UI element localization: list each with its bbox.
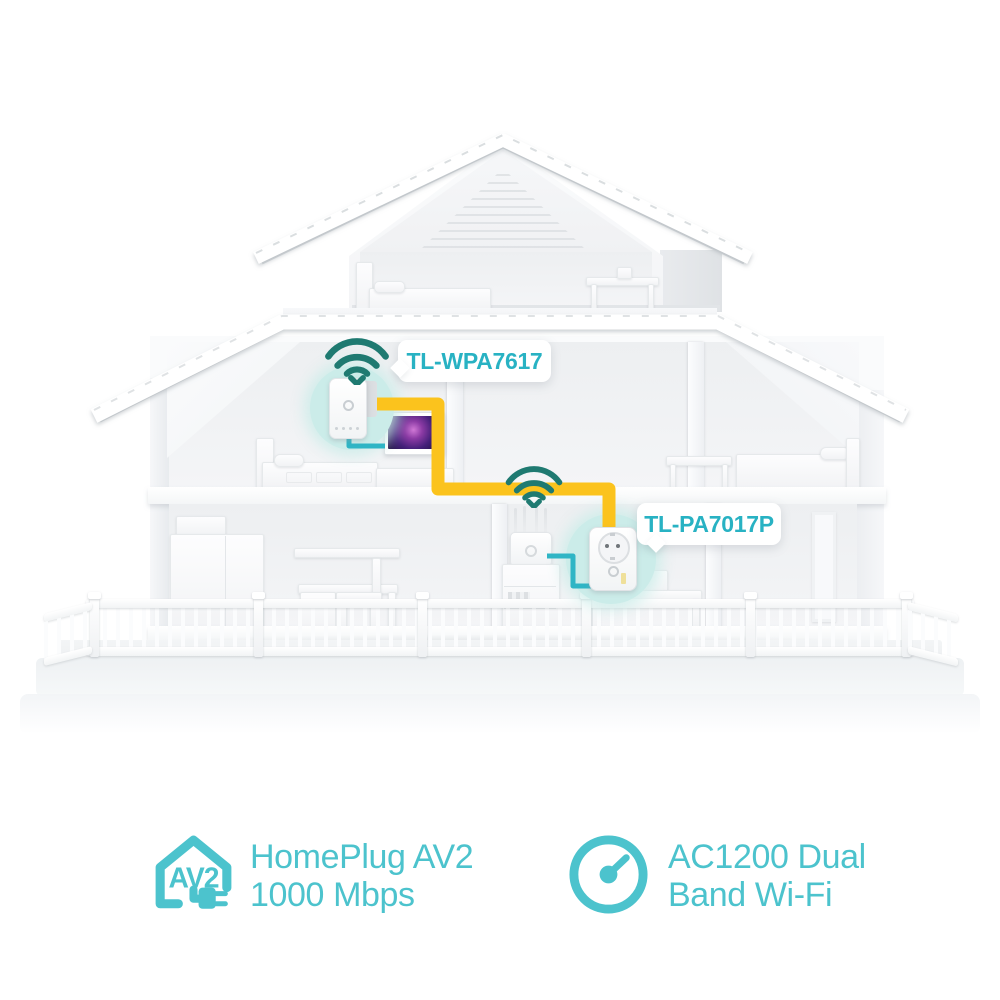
feature-homeplug-line1: HomePlug AV2 [250,838,473,876]
product-illustration: TL-WPA7617 TL-PA7017P AV2 HomePlug AV2 1… [0,0,1000,1000]
adapter-socket-hole [616,544,620,548]
adapter-logo-icon [608,566,619,577]
callout-extender: TL-WPA7617 [398,340,551,382]
wifi-signal-icon [505,464,563,508]
speedometer-icon [566,832,651,917]
extender-led [356,427,359,430]
feature-wifi-line2: Band Wi-Fi [668,876,866,914]
wifi-signal-icon [324,336,390,385]
extender-logo-icon [343,400,354,411]
extender-led [349,427,352,430]
adapter-socket-clip [610,533,615,536]
av2-house-plug-icon: AV2 [145,831,242,926]
feature-homeplug-text: HomePlug AV2 1000 Mbps [250,838,473,914]
feature-wifi-text: AC1200 Dual Band Wi-Fi [668,838,866,914]
feature-homeplug-line2: 1000 Mbps [250,876,473,914]
adapter-socket-clip [610,557,615,560]
callout-adapter: TL-PA7017P [637,503,781,545]
adapter-led [621,573,626,584]
callout-adapter-label: TL-PA7017P [644,511,774,538]
extender-led [335,427,338,430]
callout-extender-label: TL-WPA7617 [407,348,543,375]
feature-wifi-line1: AC1200 Dual [668,838,866,876]
extender-led [342,427,345,430]
powerline-cable [361,404,609,542]
adapter-socket-hole [605,544,609,548]
